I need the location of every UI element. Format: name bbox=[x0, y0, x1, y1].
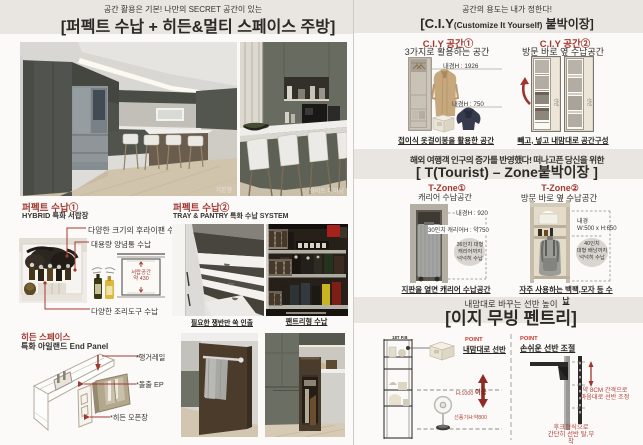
svg-text:선반: 선반 bbox=[554, 98, 560, 106]
svg-text:기본형: 기본형 bbox=[215, 186, 232, 194]
svg-text:화이트 다이닝: 화이트 다이닝 bbox=[309, 187, 344, 195]
svg-text:선반: 선반 bbox=[587, 98, 593, 106]
